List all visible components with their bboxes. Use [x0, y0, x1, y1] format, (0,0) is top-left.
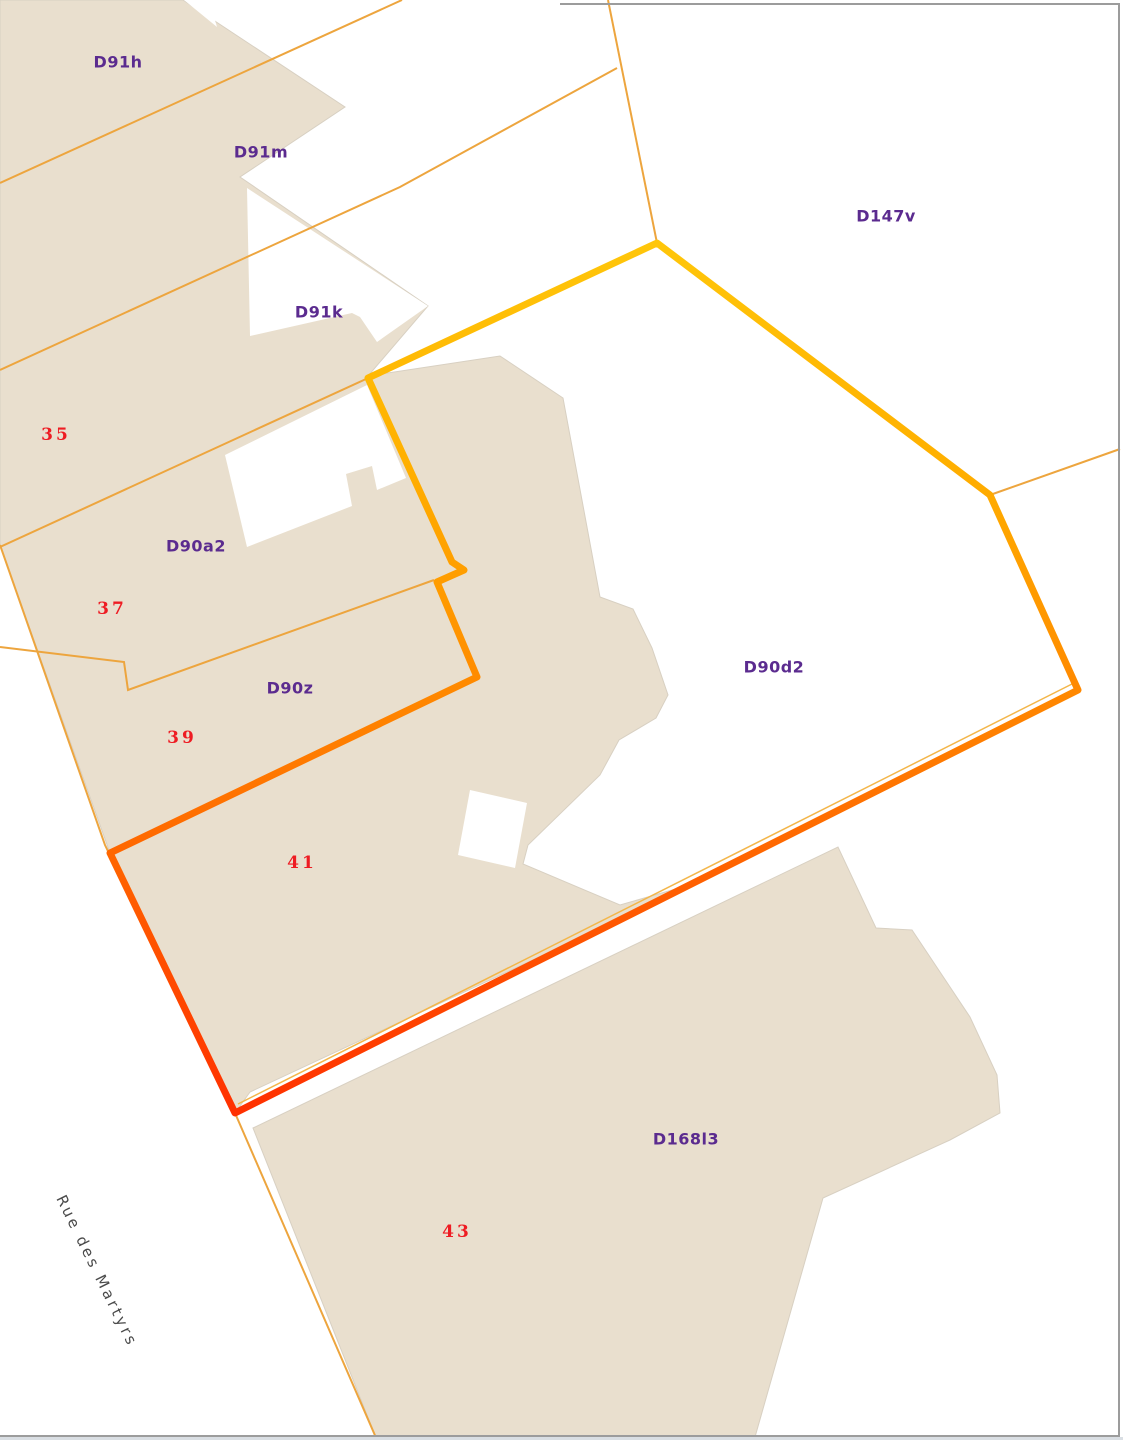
cadastral-map-view[interactable]: D91hD91mD91kD147vD90a2D90zD90d2D168l3 35… — [0, 0, 1123, 1440]
boundary-line-d147v — [990, 449, 1120, 495]
map-canvas[interactable] — [0, 0, 1123, 1440]
boundary-line-north — [608, 0, 657, 243]
